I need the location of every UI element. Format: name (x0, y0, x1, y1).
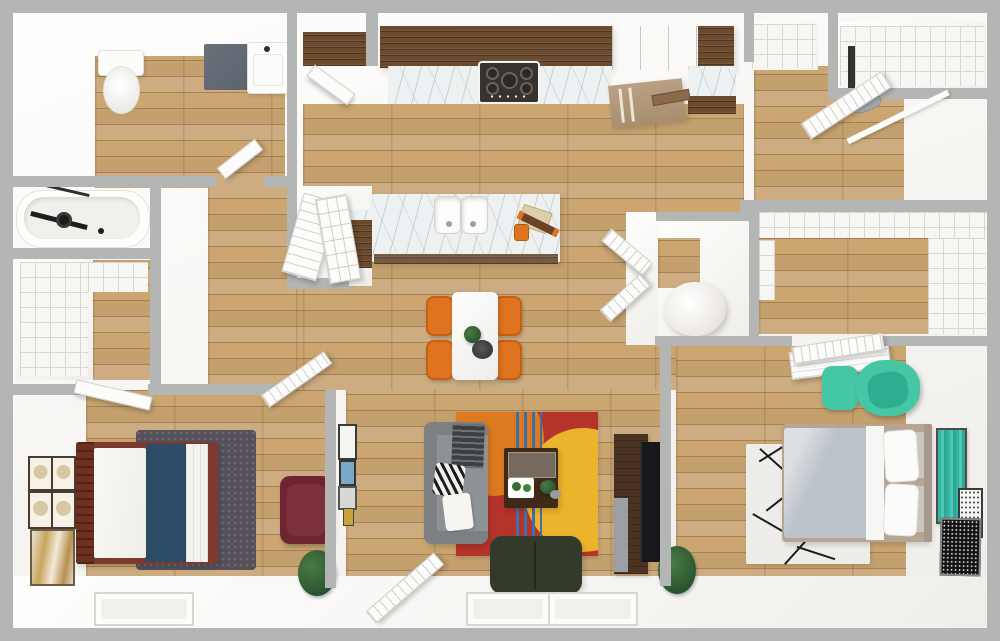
entry-wire-shelf-closet (752, 24, 816, 68)
small-dish (550, 490, 561, 499)
wall (12, 176, 151, 187)
living-room-window-1 (466, 592, 550, 626)
island-wood-base (374, 254, 558, 264)
frame-left (0, 0, 13, 641)
upper-cabinets-left (380, 26, 612, 68)
sink-basin (253, 54, 283, 86)
pantry-cabinet-top (350, 210, 372, 220)
floor-plan-3d-top-view (0, 0, 1000, 641)
loveseat-split (534, 542, 536, 590)
burner-icon (520, 67, 533, 80)
living-room-window-2 (548, 592, 638, 626)
wall (150, 176, 161, 389)
gas-cooktop (480, 63, 538, 102)
burner-icon (486, 82, 499, 95)
fridge-handle (628, 88, 634, 122)
wall (366, 8, 378, 66)
wall (12, 384, 82, 395)
teal-ottoman (822, 366, 858, 410)
side-counter-front (688, 96, 736, 114)
sink-basin-right (461, 196, 488, 234)
tray-plant-icon (523, 484, 531, 492)
faucet-icon (446, 221, 452, 227)
rug-line (797, 546, 836, 560)
faucet-icon (470, 221, 476, 227)
armchair-cushion (287, 484, 325, 536)
folded-duvet (186, 444, 208, 562)
orange-chair (494, 296, 522, 336)
pattern-artwork (939, 518, 981, 577)
wall (749, 212, 759, 336)
utility-nook-wood-sliver (658, 238, 700, 288)
orange-cup (514, 224, 529, 241)
garment-rack (848, 46, 855, 88)
fridge-handle (618, 89, 624, 123)
burner-center-icon (501, 72, 518, 89)
gallery-frame (51, 456, 76, 491)
headboard (76, 442, 94, 564)
upper-cabinets-right (698, 26, 734, 71)
wall (744, 12, 754, 62)
closet-right-top-shelving (759, 212, 987, 238)
orange-chair (426, 340, 454, 380)
closet-right-left-shelving (759, 240, 775, 300)
gallery-frame (51, 491, 76, 529)
orange-chair (494, 340, 522, 380)
wall (656, 212, 750, 221)
wall (12, 248, 151, 259)
shower-head-icon (56, 212, 72, 228)
gallery-frame (28, 456, 53, 491)
burner-icon (486, 67, 499, 80)
gray-duvet (784, 428, 870, 538)
shower-knob-icon (98, 228, 104, 234)
wall-frame (343, 508, 354, 526)
pillow (883, 483, 920, 537)
frame-right (987, 0, 1000, 641)
wall-frame (338, 424, 357, 460)
bath-mat (204, 44, 250, 90)
serving-bowl (472, 340, 493, 359)
stove-knobs (488, 94, 530, 99)
tray-plant-icon (512, 482, 521, 491)
water-heater (664, 282, 726, 336)
duvet-fold (866, 426, 884, 540)
closet-left-top-shelf (88, 262, 148, 292)
sink-basin-left (434, 196, 461, 234)
wall (878, 336, 988, 346)
tv (640, 442, 660, 562)
closet-top-right-wire-shelving (840, 26, 984, 86)
large-gold-artwork (30, 529, 75, 586)
wall (740, 200, 988, 212)
wall-frame (339, 460, 356, 486)
closet-right-side-shelving (928, 238, 986, 334)
frame-bottom (0, 628, 1000, 641)
white-pillow (442, 492, 474, 531)
wall (828, 12, 838, 90)
mattress-sheet (94, 448, 146, 558)
closet-right-floor (759, 234, 939, 334)
faucet-icon (264, 46, 270, 52)
hall-door (307, 65, 356, 106)
wall (660, 346, 671, 586)
navy-blanket (146, 444, 186, 562)
toilet-bowl (103, 66, 140, 114)
pillow (882, 429, 920, 483)
wall-frame (338, 486, 357, 510)
burner-icon (520, 82, 533, 95)
green-loveseat (490, 536, 582, 594)
gallery-frame (28, 491, 53, 529)
bedroom-left-window (94, 592, 194, 626)
white-cabinet (612, 26, 698, 70)
wall (325, 390, 336, 588)
console-gray-front (614, 498, 628, 572)
wall (655, 336, 792, 346)
closet-left-wire-shelving (20, 262, 88, 376)
dark-throw (451, 423, 485, 468)
headboard (924, 424, 932, 542)
wall (287, 12, 297, 178)
refrigerator (608, 78, 686, 128)
bathroom-wood-cabinet (303, 32, 367, 66)
coffee-table-glass (508, 452, 556, 478)
orange-chair (426, 296, 454, 336)
frame-top (0, 0, 1000, 13)
